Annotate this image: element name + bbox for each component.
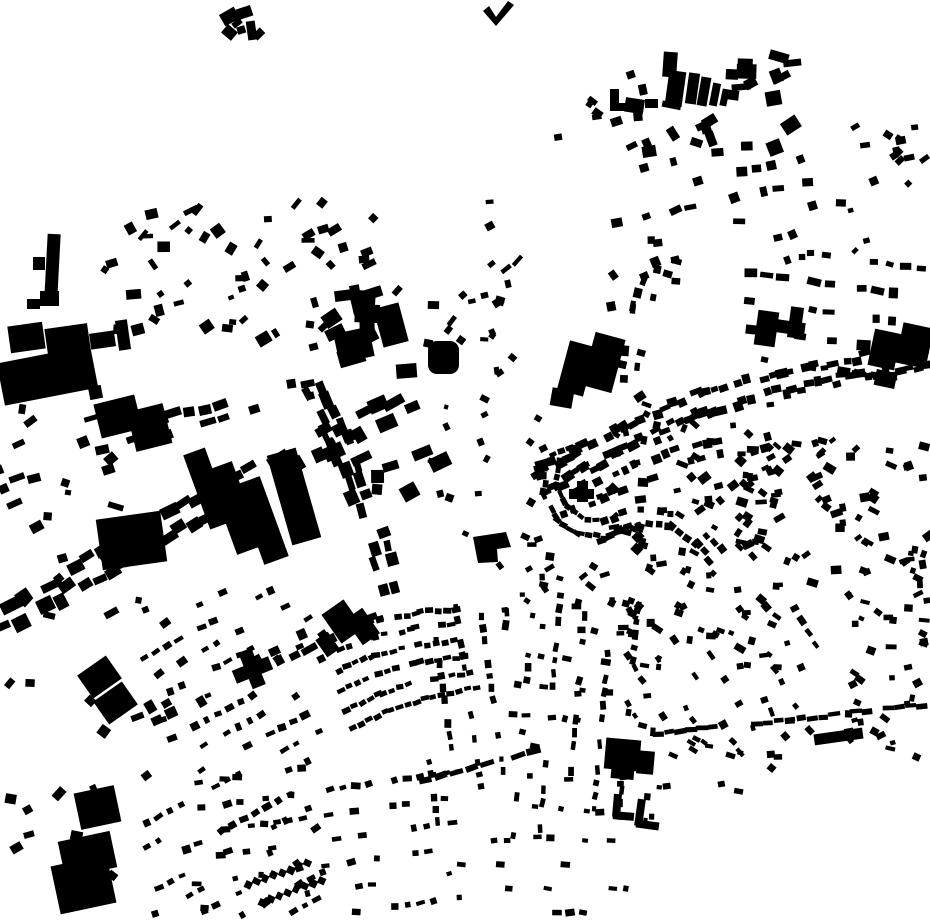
building-footprint [828, 437, 836, 444]
building-footprint [771, 384, 782, 393]
building-footprint [599, 714, 605, 722]
building-footprint [653, 436, 662, 446]
building-footprint [0, 464, 4, 477]
building-footprint [510, 751, 526, 761]
building-footprint [162, 641, 173, 651]
building-footprint [796, 615, 807, 627]
building-footprint [728, 737, 737, 746]
building-footprint [768, 49, 790, 64]
building-footprint [538, 444, 548, 453]
building-footprint [608, 269, 619, 281]
building-footprint [496, 861, 505, 868]
building-footprint [851, 356, 862, 366]
building-footprint [766, 160, 777, 171]
building-footprint [166, 878, 175, 886]
building-footprint [666, 126, 680, 142]
building-footprint [181, 844, 192, 854]
building-footprint [479, 624, 487, 633]
building-footprint [197, 804, 205, 810]
building-footprint [342, 662, 352, 670]
building-footprint [621, 465, 630, 475]
building-footprint [734, 454, 747, 467]
building-footprint [525, 565, 533, 573]
building-footprint [656, 560, 667, 567]
building-footprint [362, 676, 370, 683]
building-footprint [633, 287, 643, 299]
building-footprint [765, 138, 784, 157]
building-footprint [512, 255, 523, 267]
building-footprint [623, 885, 629, 892]
building-footprint [277, 723, 287, 732]
building-footprint [349, 808, 359, 815]
building-footprint [593, 531, 601, 538]
building-footprint [625, 709, 631, 717]
building-footprint [449, 768, 464, 777]
building-footprint [457, 862, 466, 868]
building-footprint [656, 521, 663, 528]
building-footprint [909, 694, 915, 702]
building-footprint [575, 676, 583, 686]
building-footprint [455, 688, 463, 695]
building-footprint [311, 895, 322, 904]
building-footprint [846, 452, 855, 460]
building-footprint [350, 450, 372, 466]
building-footprint [217, 413, 230, 423]
building-footprint [192, 881, 202, 886]
building-footprint [489, 684, 495, 692]
building-footprint [638, 478, 649, 487]
building-footprint [733, 379, 743, 388]
building-footprint [183, 406, 195, 417]
building-footprint [851, 717, 858, 723]
building-footprint [735, 496, 748, 508]
building-footprint [878, 532, 890, 542]
building-footprint [126, 289, 142, 300]
building-footprint [297, 764, 306, 772]
district-village-connector [617, 265, 662, 383]
building-footprint [166, 807, 174, 815]
building-footprint [348, 724, 357, 732]
building-footprint [765, 90, 783, 107]
building-footprint [533, 835, 541, 840]
building-footprint [452, 656, 460, 661]
building-footprint [808, 306, 817, 314]
building-footprint [494, 367, 500, 375]
building-footprint [671, 257, 683, 265]
building-footprint [700, 546, 710, 556]
building-footprint [510, 832, 516, 839]
building-footprint [744, 268, 757, 277]
building-footprint [776, 273, 790, 281]
building-footprint [522, 713, 531, 717]
building-footprint [151, 648, 160, 657]
building-footprint [917, 265, 926, 271]
building-footprint [783, 557, 791, 566]
building-footprint [541, 785, 546, 794]
building-footprint [18, 404, 26, 415]
building-footprint [562, 655, 572, 662]
building-footprint [428, 341, 459, 374]
building-footprint [156, 290, 164, 298]
building-footprint [196, 601, 204, 608]
building-footprint [501, 620, 509, 631]
building-footprint [305, 320, 314, 328]
building-footprint [708, 724, 718, 730]
building-footprint [802, 178, 813, 187]
building-footprint [889, 616, 897, 624]
building-footprint [571, 741, 577, 750]
building-footprint [763, 720, 773, 725]
building-footprint [483, 454, 491, 463]
building-footprint [650, 727, 656, 736]
building-footprint [771, 492, 781, 498]
building-footprint [595, 809, 605, 816]
building-footprint [274, 796, 283, 805]
building-footprint [717, 781, 725, 788]
building-footprint [683, 705, 689, 712]
building-footprint [351, 659, 359, 666]
building-footprint [88, 385, 103, 400]
building-footprint [402, 801, 410, 807]
building-footprint [773, 233, 783, 242]
building-footprint [691, 498, 699, 505]
building-footprint [728, 630, 735, 636]
building-footprint [9, 841, 23, 854]
building-footprint [577, 513, 585, 520]
building-footprint [266, 586, 276, 596]
building-footprint [715, 496, 725, 506]
building-footprint [398, 645, 405, 650]
building-footprint [582, 611, 587, 621]
building-footprint [355, 883, 364, 890]
building-footprint [12, 439, 26, 450]
building-footprint [222, 324, 234, 333]
building-footprint [482, 636, 488, 644]
building-footprint [743, 662, 751, 669]
building-footprint [252, 877, 262, 886]
building-footprint [429, 694, 436, 700]
building-footprint [371, 484, 382, 495]
building-footprint [884, 554, 897, 565]
building-footprint [680, 424, 688, 433]
building-footprint [416, 900, 426, 906]
building-footprint [244, 880, 253, 890]
building-footprint [412, 850, 419, 856]
building-footprint [199, 319, 215, 335]
building-footprint [385, 551, 400, 567]
building-footprint [142, 843, 151, 851]
building-footprint [638, 84, 648, 96]
building-footprint [22, 804, 33, 815]
building-footprint [759, 653, 769, 659]
building-footprint [748, 636, 757, 645]
building-footprint [193, 840, 203, 847]
building-footprint [7, 322, 45, 354]
building-footprint [608, 886, 617, 891]
building-footprint [236, 25, 246, 35]
building-footprint [501, 767, 506, 775]
building-footprint [792, 702, 799, 710]
building-footprint [555, 603, 563, 613]
building-footprint [235, 890, 242, 896]
building-footprint [883, 705, 895, 710]
building-footprint [711, 524, 718, 531]
building-footprint [612, 470, 620, 477]
building-footprint [256, 710, 266, 720]
building-footprint [827, 337, 837, 344]
building-footprint [96, 511, 167, 571]
building-footprint [868, 506, 880, 516]
building-footprint [275, 891, 284, 900]
building-footprint [853, 698, 862, 706]
building-footprint [95, 444, 110, 455]
building-footprint [733, 642, 746, 654]
building-footprint [870, 286, 885, 296]
building-footprint [404, 400, 421, 414]
building-footprint [234, 722, 242, 731]
building-footprint [203, 716, 210, 724]
building-footprint [479, 613, 484, 620]
building-footprint [807, 250, 814, 256]
building-footprint [639, 163, 650, 173]
building-footprint [107, 501, 124, 511]
building-footprint [851, 247, 859, 255]
building-footprint [885, 461, 897, 470]
building-footprint [691, 672, 699, 681]
building-footprint [890, 740, 896, 746]
building-footprint [368, 213, 379, 224]
building-footprint [8, 472, 25, 484]
building-footprint [76, 435, 90, 449]
building-footprint [177, 801, 185, 809]
building-footprint [534, 414, 543, 423]
building-footprint [375, 413, 399, 434]
building-footprint [737, 64, 757, 79]
building-footprint [141, 606, 149, 614]
building-footprint [392, 285, 403, 297]
building-footprint [60, 478, 70, 488]
building-footprint [760, 356, 768, 363]
building-footprint [321, 863, 330, 868]
building-footprint [543, 886, 552, 892]
building-footprint [769, 68, 784, 85]
building-footprint [185, 891, 194, 899]
building-footprint [602, 674, 609, 684]
building-footprint [183, 279, 192, 288]
building-footprint [520, 592, 525, 597]
building-footprint [237, 698, 245, 706]
building-footprint [468, 298, 476, 304]
building-footprint [850, 122, 860, 131]
building-footprint [604, 650, 610, 658]
building-footprint [204, 692, 211, 698]
building-footprint [514, 792, 520, 802]
building-footprint [255, 330, 273, 347]
building-footprint [341, 706, 351, 715]
building-footprint [433, 806, 439, 813]
building-footprint [335, 667, 343, 675]
building-footprint [796, 663, 805, 672]
building-footprint [759, 375, 770, 383]
building-footprint [733, 218, 745, 224]
building-footprint [573, 444, 581, 449]
building-footprint [310, 823, 321, 834]
building-footprint [579, 909, 588, 916]
building-footprint [446, 731, 452, 740]
building-footprint [823, 309, 835, 314]
building-footprint [553, 473, 560, 481]
building-footprint [592, 518, 599, 523]
building-footprint [734, 586, 742, 593]
building-footprint [868, 176, 879, 187]
building-footprint [720, 675, 729, 684]
building-footprint [211, 663, 221, 672]
building-footprint [282, 261, 296, 273]
building-footprint [366, 695, 374, 702]
building-footprint [796, 154, 806, 164]
building-footprint [288, 907, 298, 916]
building-footprint [74, 785, 122, 830]
building-footprint [4, 677, 15, 689]
building-footprint [261, 257, 270, 267]
building-footprint [919, 559, 927, 569]
building-footprint [773, 512, 786, 523]
building-footprint [222, 799, 233, 808]
building-footprint [284, 766, 292, 774]
building-footprint [283, 888, 292, 897]
building-footprint [796, 714, 806, 721]
building-footprint [916, 703, 928, 710]
building-footprint [804, 725, 815, 736]
building-footprint [630, 644, 638, 651]
building-footprint [351, 782, 361, 789]
building-footprint [438, 622, 446, 628]
building-footprint [539, 574, 545, 581]
building-footprint [888, 316, 896, 325]
building-footprint [189, 721, 200, 732]
building-footprint [692, 538, 704, 550]
building-footprint [725, 752, 736, 760]
building-footprint [221, 826, 231, 833]
building-footprint [854, 534, 862, 542]
building-footprint [641, 145, 656, 158]
building-footprint [590, 627, 599, 635]
building-footprint [431, 794, 438, 802]
building-footprint [624, 699, 632, 708]
building-footprint [405, 902, 411, 908]
building-footprint [143, 699, 157, 714]
building-footprint [706, 650, 715, 661]
building-footprint [391, 903, 398, 910]
building-footprint [553, 642, 560, 652]
building-footprint [593, 779, 600, 786]
building-footprint [555, 465, 561, 473]
building-footprint [444, 325, 454, 335]
building-footprint [273, 819, 281, 825]
building-footprint [920, 550, 928, 559]
building-footprint [65, 489, 72, 495]
building-footprint [27, 473, 42, 484]
building-footprint [177, 681, 186, 690]
building-footprint [565, 909, 575, 917]
building-footprint [551, 669, 556, 678]
building-footprint [767, 750, 775, 758]
building-footprint [410, 824, 417, 832]
building-footprint [804, 628, 813, 637]
building-footprint [689, 548, 699, 556]
building-footprint [369, 556, 380, 572]
building-footprint [584, 808, 591, 813]
building-footprint [197, 886, 205, 893]
buildings-layer [0, 1, 930, 919]
building-footprint [718, 383, 729, 393]
building-footprint [462, 530, 470, 537]
building-footprint [688, 746, 698, 755]
building-footprint [392, 665, 401, 672]
building-footprint [686, 472, 697, 483]
building-footprint [844, 590, 854, 600]
building-footprint [144, 208, 158, 220]
building-footprint [339, 784, 347, 790]
building-footprint [399, 481, 421, 502]
building-footprint [443, 404, 448, 410]
building-footprint [595, 765, 600, 775]
building-footprint [486, 199, 494, 204]
building-footprint [161, 698, 173, 709]
building-footprint [264, 216, 272, 222]
building-footprint [217, 588, 227, 597]
building-footprint [611, 217, 624, 228]
building-footprint [402, 775, 412, 781]
building-footprint [689, 716, 697, 725]
building-footprint [685, 566, 692, 574]
building-footprint [619, 786, 625, 795]
building-footprint [772, 185, 784, 192]
building-footprint [176, 656, 189, 668]
building-footprint [660, 448, 670, 459]
building-footprint [730, 422, 736, 428]
building-footprint [184, 226, 193, 235]
building-footprint [636, 750, 655, 774]
building-footprint [741, 373, 751, 384]
building-footprint [684, 203, 697, 210]
building-footprint [33, 257, 45, 270]
building-footprint [539, 684, 548, 690]
building-footprint [626, 141, 639, 151]
building-footprint [823, 462, 837, 475]
building-footprint [588, 500, 596, 507]
building-footprint [832, 380, 842, 389]
building-footprint [151, 910, 159, 918]
building-footprint [669, 634, 679, 645]
building-footprint [751, 164, 761, 172]
building-footprint [873, 608, 883, 617]
building-footprint [743, 429, 753, 439]
building-footprint [676, 460, 689, 469]
building-footprint [859, 492, 870, 502]
building-footprint [446, 622, 455, 628]
building-footprint [662, 269, 673, 278]
building-footprint [744, 297, 755, 305]
building-footprint [256, 279, 269, 292]
building-footprint [774, 718, 784, 723]
building-footprint [895, 322, 930, 369]
building-footprint [301, 902, 308, 909]
building-footprint [234, 627, 244, 636]
building-footprint [389, 648, 397, 655]
building-footprint [324, 812, 334, 818]
building-footprint [374, 855, 380, 861]
